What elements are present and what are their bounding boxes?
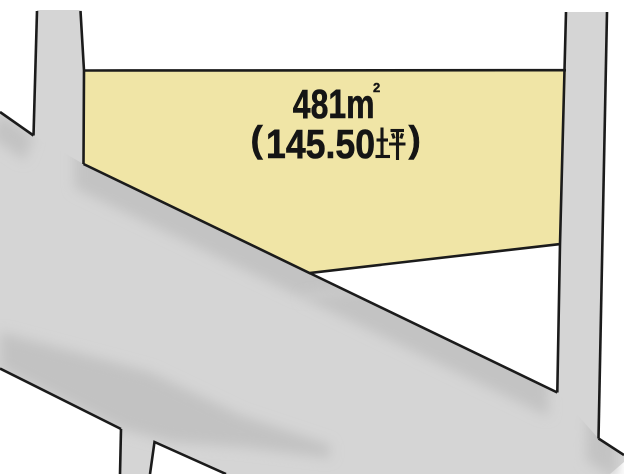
svg-text:): )	[409, 119, 421, 160]
svg-text:(: (	[251, 119, 264, 160]
svg-text:2: 2	[373, 80, 380, 95]
svg-text:145.50: 145.50	[266, 122, 375, 168]
svg-text:481m: 481m	[293, 81, 375, 127]
